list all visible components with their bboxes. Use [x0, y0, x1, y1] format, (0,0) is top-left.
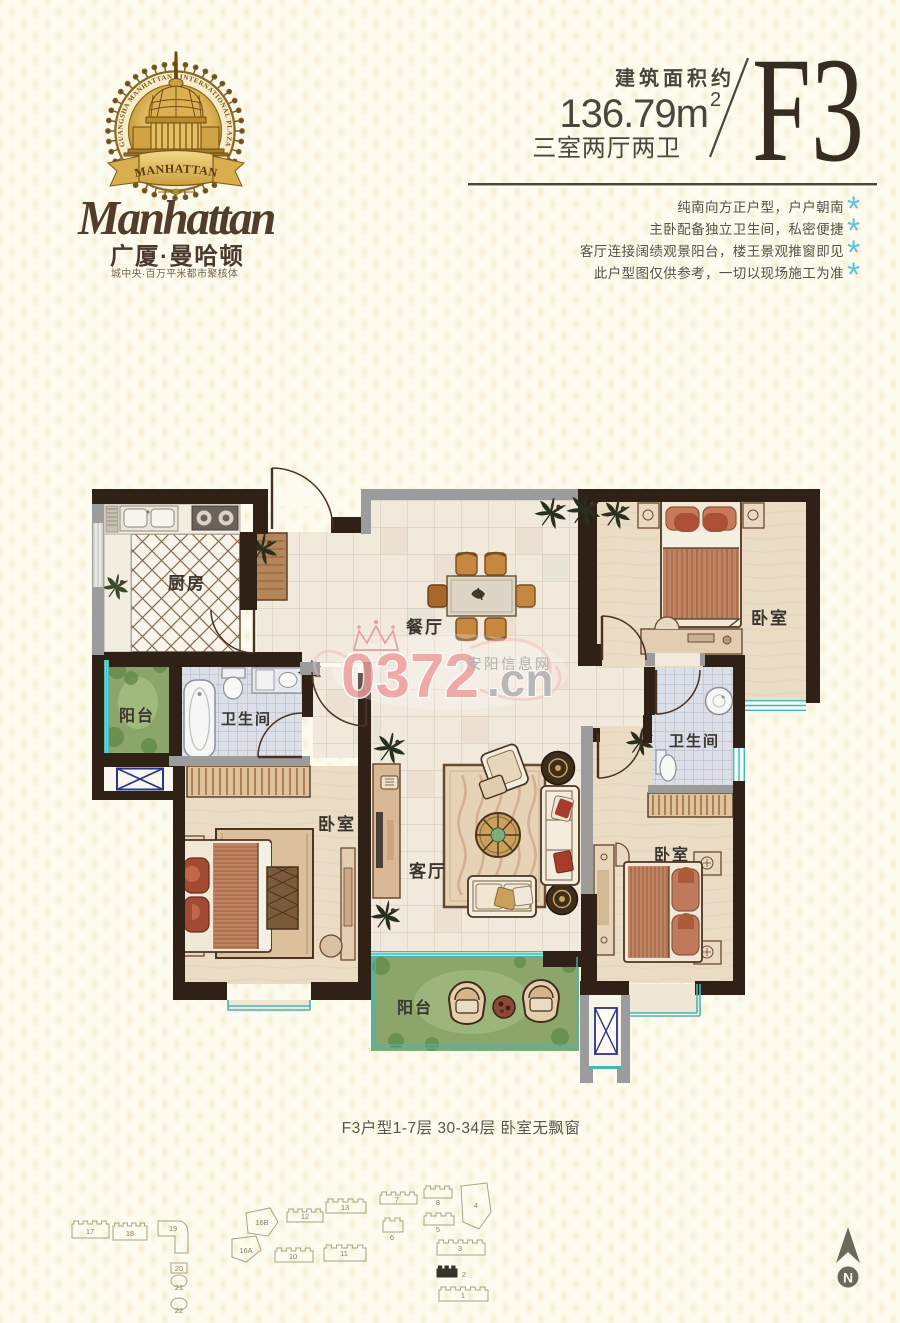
svg-text:F3户型1-7层 30-34层 卧室无飘窗: F3户型1-7层 30-34层 卧室无飘窗: [342, 1119, 581, 1137]
svg-text:4: 4: [474, 1201, 478, 1210]
svg-text:6: 6: [390, 1233, 394, 1242]
svg-text:7: 7: [395, 1195, 399, 1204]
svg-text:11: 11: [340, 1249, 348, 1258]
svg-text:3: 3: [458, 1244, 462, 1253]
svg-text:22: 22: [175, 1306, 183, 1315]
svg-text:19: 19: [169, 1224, 177, 1233]
svg-text:20: 20: [175, 1264, 183, 1273]
svg-text:1: 1: [461, 1291, 465, 1300]
svg-text:16A: 16A: [239, 1246, 252, 1255]
svg-text:16B: 16B: [255, 1218, 268, 1227]
svg-text:N: N: [843, 1270, 853, 1286]
svg-text:13: 13: [341, 1203, 349, 1212]
svg-text:10: 10: [289, 1252, 297, 1261]
svg-text:8: 8: [436, 1198, 440, 1207]
svg-text:5: 5: [436, 1225, 440, 1234]
svg-text:12: 12: [301, 1212, 309, 1221]
svg-text:18: 18: [126, 1229, 134, 1238]
svg-text:2: 2: [462, 1270, 466, 1279]
svg-text:21: 21: [175, 1283, 183, 1292]
svg-text:17: 17: [86, 1227, 94, 1236]
